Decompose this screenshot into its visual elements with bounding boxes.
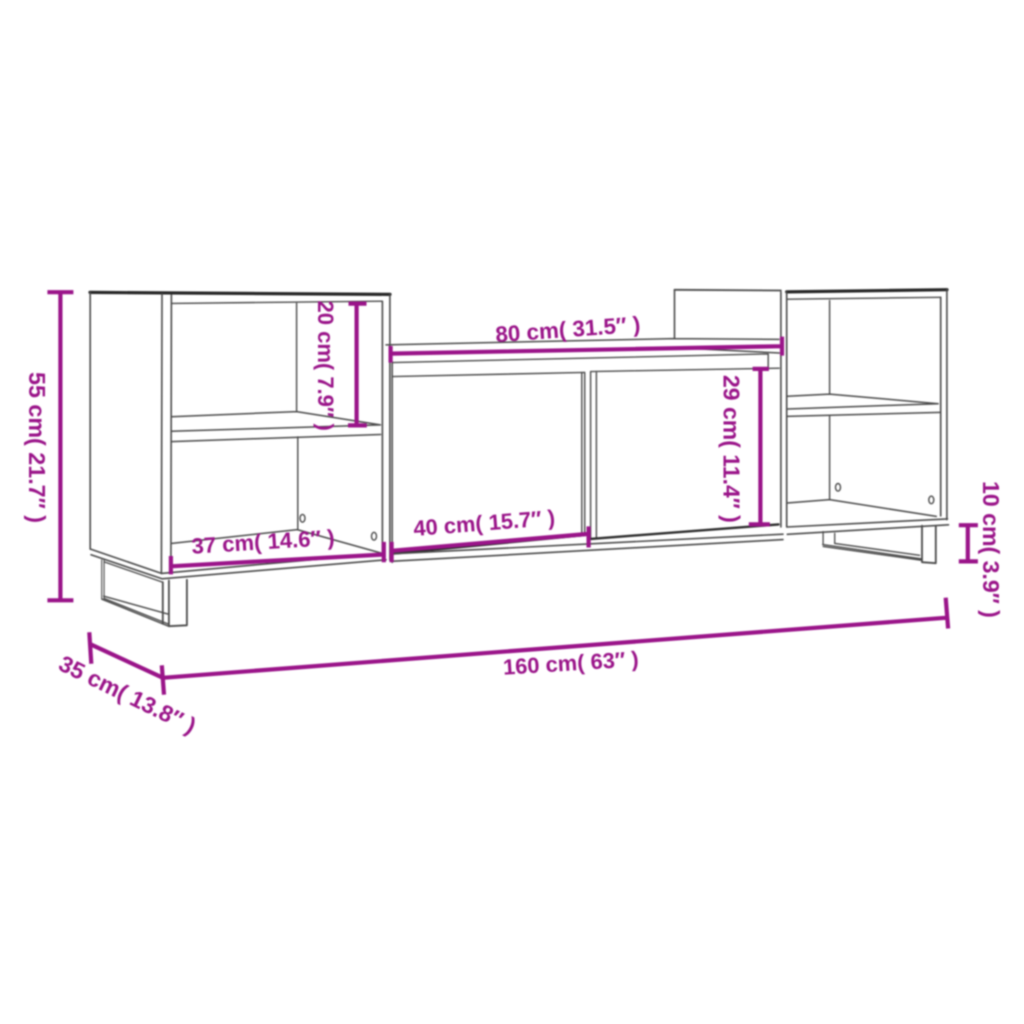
svg-text:40 cm( 15.7″ ): 40 cm( 15.7″ ) <box>412 505 555 541</box>
svg-text:29 cm( 11.4″ ): 29 cm( 11.4″ ) <box>719 375 745 523</box>
svg-text:20 cm( 7.9″ ): 20 cm( 7.9″ ) <box>313 301 338 431</box>
svg-text:55 cm( 21.7″ ): 55 cm( 21.7″ ) <box>24 372 50 523</box>
svg-text:10 cm( 3.9″ ): 10 cm( 3.9″ ) <box>978 481 1004 618</box>
svg-text:37 cm( 14.6″ ): 37 cm( 14.6″ ) <box>191 525 336 559</box>
svg-text:80 cm( 31.5″ ): 80 cm( 31.5″ ) <box>495 312 642 348</box>
